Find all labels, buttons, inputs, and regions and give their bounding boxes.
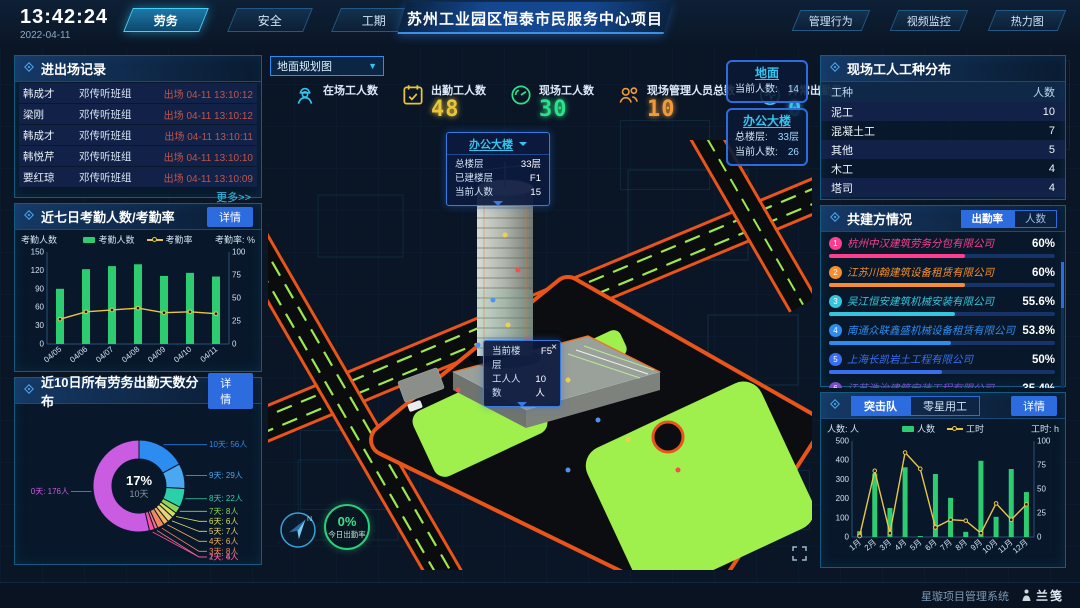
stat-item: 出勤工人数 48 — [400, 82, 486, 122]
svg-text:0天: 176人: 0天: 176人 — [31, 487, 69, 496]
compass-north-label: N — [307, 516, 312, 523]
map-layer-dropdown[interactable]: 地面规划图 ▼ — [270, 56, 384, 76]
caret-down-icon — [519, 142, 527, 150]
badge-row: 当前人数:14 — [735, 82, 799, 97]
teams-legend: 人数工时 — [885, 422, 1001, 435]
today-attendance-rate: 0% 今日出勤率 — [324, 504, 370, 550]
tooltip-row: 工人人数10人 — [492, 373, 552, 401]
svg-text:50: 50 — [1037, 485, 1046, 494]
badge-row: 当前人数:26 — [735, 145, 799, 160]
company-name: 上海长凯岩土工程有限公司 — [847, 352, 1027, 367]
stat-item: 现场工人数 30 — [508, 82, 594, 122]
teams-detail-button[interactable]: 详情 — [1011, 396, 1057, 416]
worker-name: 韩悦芹 — [23, 149, 79, 164]
trade-name: 木工 — [831, 161, 1015, 177]
svg-text:9天: 29人: 9天: 29人 — [209, 471, 243, 480]
trades-title: 现场工人工种分布 — [847, 59, 951, 78]
svg-text:6天: 6人: 6天: 6人 — [209, 517, 238, 526]
progress-fill — [829, 254, 965, 258]
company-row[interactable]: 4 南通众联鑫盛机械设备租赁有限公司 53.8% — [829, 323, 1055, 352]
floor-tooltip[interactable]: × 当前楼层F5工人人数10人 — [483, 340, 561, 407]
header-tab[interactable]: 视频监控 — [890, 10, 968, 31]
svg-text:04/10: 04/10 — [172, 344, 194, 364]
exit-event: 出场 04-11 13:10:10 — [164, 149, 253, 164]
team-name: 邓传听班组 — [79, 128, 164, 143]
diamond-icon — [23, 60, 35, 78]
company-row[interactable]: 2 江苏川翰建筑设备租赁有限公司 60% — [829, 265, 1055, 294]
entry-exit-title: 进出场记录 — [41, 59, 106, 78]
svg-text:100: 100 — [232, 248, 246, 257]
svg-text:50: 50 — [232, 294, 241, 303]
trade-count: 4 — [1015, 163, 1055, 175]
partners-list: 1 杭州中汉建筑劳务分包有限公司 60% 2 江苏川翰建筑设备租赁有限公司 60… — [821, 232, 1065, 388]
progress-fill — [829, 341, 951, 345]
teams-left-axis-label: 人数: 人 — [827, 422, 885, 435]
svg-text:10天: 56人: 10天: 56人 — [209, 440, 247, 449]
progress-track — [829, 370, 1055, 374]
compass-icon[interactable]: N — [278, 510, 318, 555]
svg-text:7天: 8人: 7天: 8人 — [209, 507, 238, 516]
svg-text:11月: 11月 — [996, 538, 1014, 555]
team-name: 邓传听班组 — [79, 86, 164, 101]
svg-text:500: 500 — [836, 437, 850, 446]
logo-figure-icon — [1021, 589, 1032, 602]
partners-title: 共建方情况 — [847, 209, 912, 228]
svg-text:04/08: 04/08 — [120, 344, 142, 364]
trade-name: 其他 — [831, 142, 1015, 158]
company-row[interactable]: 3 吴江恒安建筑机械安装有限公司 55.6% — [829, 294, 1055, 323]
exit-event: 出场 04-11 13:10:11 — [164, 128, 253, 143]
entry-exit-list: 韩成才 邓传听班组 出场 04-11 13:10:12 梁刚 邓传听班组 出场 … — [15, 83, 261, 187]
worker-name: 韩成才 — [23, 128, 79, 143]
rank-badge: 4 — [829, 324, 842, 337]
svg-text:100: 100 — [836, 513, 850, 522]
diamond-icon — [829, 397, 841, 415]
days-distribution-chart: 10天: 56人9天: 29人8天: 22人7天: 8人6天: 6人5天: 7人… — [21, 406, 255, 562]
svg-text:30: 30 — [35, 321, 44, 330]
days-distribution-header: 近10日所有劳务出勤天数分布 详情 — [15, 378, 261, 404]
exit-event: 出场 04-11 13:10:12 — [164, 86, 253, 101]
trade-name: 泥工 — [831, 104, 1015, 120]
team-name: 邓传听班组 — [79, 170, 164, 185]
table-row[interactable]: 混凝土工 7 — [821, 121, 1065, 140]
legend-item[interactable]: 考勤人数 — [83, 233, 134, 246]
badge-title[interactable]: 地面 — [735, 64, 799, 81]
attendance-title: 近七日考勤人数/考勤率 — [41, 207, 175, 226]
tooltip-row: 当前人数15 — [455, 186, 541, 200]
svg-text:04/05: 04/05 — [42, 344, 64, 364]
svg-text:7月: 7月 — [939, 538, 954, 553]
logo-text: 兰笺 — [1036, 587, 1064, 604]
footer-bar: 星璇项目管理系统 兰笺 — [0, 582, 1080, 608]
svg-text:5月: 5月 — [908, 538, 923, 553]
svg-text:3月: 3月 — [878, 538, 893, 553]
tooltip-row: 已建楼层F1 — [455, 172, 541, 186]
diamond-icon — [829, 210, 841, 228]
teams-header: 突击队零星用工 详情 — [821, 393, 1065, 419]
svg-text:8天: 22人: 8天: 22人 — [209, 494, 243, 503]
svg-text:120: 120 — [31, 266, 45, 275]
attendance-header: 近七日考勤人数/考勤率 详情 — [15, 204, 261, 230]
worker-name: 梁刚 — [23, 107, 79, 122]
rank-badge: 6 — [829, 382, 842, 388]
entry-exit-row[interactable]: 韩成才 邓传听班组 出场 04-11 13:10:11 — [19, 125, 257, 145]
rank-badge: 5 — [829, 353, 842, 366]
svg-text:25: 25 — [232, 317, 241, 326]
brand-logo: 兰笺 — [1021, 587, 1064, 604]
company-name: 江苏浩治建筑安装工程有限公司 — [847, 381, 1017, 388]
team-name: 邓传听班组 — [79, 149, 164, 164]
worker-icon — [292, 82, 318, 122]
legend-item[interactable]: 考勤率 — [147, 233, 193, 246]
entry-exit-row[interactable]: 韩悦芹 邓传听班组 出场 04-11 13:10:10 — [19, 146, 257, 166]
exit-event: 出场 04-11 13:10:09 — [164, 170, 253, 185]
attendance-left-axis-label: 考勤人数 — [21, 233, 79, 246]
svg-text:8月: 8月 — [954, 538, 969, 553]
gauge-icon — [508, 82, 534, 122]
company-value: 50% — [1032, 354, 1055, 366]
entry-exit-panel: 进出场记录 韩成才 邓传听班组 出场 04-11 13:10:12 梁刚 邓传听… — [14, 55, 262, 198]
progress-fill — [829, 283, 965, 287]
legend-item[interactable]: 人数 — [902, 422, 935, 435]
svg-text:400: 400 — [836, 456, 850, 465]
attendance-chart: 0306090120150025507510004/0504/0604/0704… — [21, 246, 255, 364]
badge-row: 总楼层:33层 — [735, 130, 799, 145]
svg-text:4天: 6人: 4天: 6人 — [209, 537, 238, 546]
table-row[interactable]: 塔司 4 — [821, 178, 1065, 197]
stat-value: 10 — [647, 98, 735, 122]
people-icon — [616, 82, 642, 122]
trade-name: 塔司 — [831, 180, 1015, 196]
svg-text:75: 75 — [232, 271, 241, 280]
company-row[interactable]: 1 杭州中汉建筑劳务分包有限公司 60% — [829, 236, 1055, 265]
building-tooltip[interactable]: 办公大楼 总楼层33层已建楼层F1当前人数15 — [446, 132, 550, 206]
svg-text:10天: 10天 — [129, 489, 148, 499]
column-header: 工种 — [831, 84, 1015, 100]
today-rate-value: 0% — [338, 515, 357, 528]
company-value: 60% — [1032, 238, 1055, 250]
partners-tab[interactable]: 出勤率 — [961, 210, 1015, 228]
badge-title[interactable]: 办公大楼 — [735, 112, 799, 129]
diamond-icon — [829, 60, 841, 78]
partners-tab[interactable]: 人数 — [1014, 210, 1057, 228]
attendance-detail-button[interactable]: 详情 — [207, 207, 253, 227]
svg-text:200: 200 — [836, 494, 850, 503]
map-region: 地面规划图 ▼ 在场工人数 出勤工人数 48 现场工人数 30 现场管理人员总数… — [268, 48, 812, 574]
stat-item: 在场工人数 — [292, 82, 378, 122]
company-value: 53.8% — [1022, 325, 1055, 337]
trade-name: 混凝土工 — [831, 123, 1015, 139]
column-header: 人数 — [1015, 84, 1055, 100]
stat-label: 现场管理人员总数 — [647, 82, 735, 98]
company-row[interactable]: 6 江苏浩治建筑安装工程有限公司 35.4% — [829, 381, 1055, 388]
days-distribution-panel: 近10日所有劳务出勤天数分布 详情 10天: 56人9天: 29人8天: 22人… — [14, 377, 262, 565]
stat-label: 现场工人数 — [539, 82, 594, 98]
trades-table: 泥工 10 混凝土工 7 其他 5 木工 4 塔司 4 — [821, 102, 1065, 197]
svg-text:04/07: 04/07 — [94, 344, 116, 364]
table-row[interactable]: 其他 5 — [821, 140, 1065, 159]
svg-text:75: 75 — [1037, 461, 1046, 470]
stat-label: 出勤工人数 — [431, 82, 486, 98]
today-rate-label: 今日出勤率 — [328, 529, 366, 540]
team-name: 邓传听班组 — [79, 107, 164, 122]
svg-text:300: 300 — [836, 475, 850, 484]
progress-track — [829, 312, 1055, 316]
progress-track — [829, 283, 1055, 287]
teams-chart: 010020030040050002550751001月2月3月4月5月6月7月… — [826, 435, 1060, 557]
header-tab[interactable]: 劳务 — [123, 8, 209, 32]
stat-item: 现场管理人员总数 10 — [616, 82, 735, 122]
stat-label: 在场工人数 — [323, 82, 378, 98]
trade-count: 10 — [1015, 106, 1055, 118]
floor-badge[interactable]: 办公大楼总楼层:33层当前人数:26 — [726, 108, 808, 166]
teams-panel: 突击队零星用工 详情 人数: 人 人数工时 工时: h 010020030040… — [820, 392, 1066, 568]
company-value: 60% — [1032, 267, 1055, 279]
company-name: 吴江恒安建筑机械安装有限公司 — [847, 294, 1017, 309]
partners-header: 共建方情况 出勤率人数 — [821, 206, 1065, 232]
entry-exit-row[interactable]: 要红琼 邓传听班组 出场 04-11 13:10:09 — [19, 167, 257, 187]
svg-text:10月: 10月 — [981, 538, 1000, 556]
progress-track — [829, 254, 1055, 258]
company-value: 35.4% — [1022, 383, 1055, 389]
company-name: 江苏川翰建筑设备租赁有限公司 — [847, 265, 1027, 280]
svg-text:1天: 6人: 1天: 6人 — [209, 553, 238, 562]
system-name: 星璇项目管理系统 — [921, 588, 1009, 604]
svg-text:0: 0 — [845, 533, 850, 542]
rank-badge: 1 — [829, 237, 842, 250]
company-name: 杭州中汉建筑劳务分包有限公司 — [847, 236, 1027, 251]
trade-count: 4 — [1015, 182, 1055, 194]
teams-tab[interactable]: 零星用工 — [910, 396, 980, 416]
entry-exit-row[interactable]: 韩成才 邓传听班组 出场 04-11 13:10:12 — [19, 83, 257, 103]
svg-text:60: 60 — [35, 303, 44, 312]
svg-text:12月: 12月 — [1011, 538, 1030, 556]
page-title: 苏州工业园区恒泰市民服务中心项目 — [402, 8, 668, 29]
fullscreen-icon[interactable] — [792, 546, 807, 566]
svg-text:25: 25 — [1037, 509, 1046, 518]
table-row[interactable]: 木工 4 — [821, 159, 1065, 178]
exit-event: 出场 04-11 13:10:12 — [164, 107, 253, 122]
calendar-check-icon — [400, 82, 426, 122]
header-tab[interactable]: 安全 — [227, 8, 313, 32]
trade-count: 7 — [1015, 125, 1055, 137]
svg-text:2月: 2月 — [863, 538, 878, 553]
stat-value: 48 — [431, 98, 486, 122]
header-bar: 13:42:24 2022-04-11 劳务安全工期 苏州工业园区恒泰市民服务中… — [0, 0, 1080, 48]
tooltip-row: 当前楼层F5 — [492, 345, 552, 373]
teams-tabs: 突击队零星用工 — [851, 396, 980, 416]
progress-track — [829, 341, 1055, 345]
attendance-legend: 考勤人数考勤率 — [79, 233, 197, 246]
teams-right-axis-label: 工时: h — [1001, 422, 1059, 435]
svg-text:1月: 1月 — [848, 538, 863, 553]
trades-table-header: 工种人数 — [821, 82, 1065, 102]
worker-name: 要红琼 — [23, 170, 79, 185]
svg-text:150: 150 — [31, 248, 45, 257]
header-tabs-right: 管理行为视频监控热力图 — [796, 10, 1062, 31]
header-tab[interactable]: 管理行为 — [792, 10, 870, 31]
svg-text:04/09: 04/09 — [146, 344, 168, 364]
company-row[interactable]: 5 上海长凯岩土工程有限公司 50% — [829, 352, 1055, 381]
chevron-down-icon: ▼ — [368, 61, 377, 71]
time-display: 13:42:24 — [20, 6, 108, 29]
svg-text:17%: 17% — [126, 473, 152, 488]
svg-text:6月: 6月 — [923, 538, 938, 553]
svg-text:0: 0 — [40, 340, 45, 349]
svg-text:4月: 4月 — [893, 538, 908, 553]
days-distribution-title: 近10日所有劳务出勤天数分布 — [41, 372, 202, 410]
clock: 13:42:24 2022-04-11 — [20, 6, 108, 41]
partners-tabs: 出勤率人数 — [961, 210, 1058, 228]
svg-text:04/06: 04/06 — [68, 344, 90, 364]
diamond-icon — [23, 382, 35, 400]
attendance-panel: 近七日考勤人数/考勤率 详情 考勤人数 考勤人数考勤率 考勤率: % 03060… — [14, 203, 262, 372]
trades-header: 现场工人工种分布 — [821, 56, 1065, 82]
rank-badge: 3 — [829, 295, 842, 308]
diamond-icon — [23, 208, 35, 226]
trades-panel: 现场工人工种分布 工种人数 泥工 10 混凝土工 7 其他 5 木工 4 塔司 … — [820, 55, 1066, 200]
close-icon[interactable]: × — [551, 342, 557, 353]
svg-text:0: 0 — [232, 340, 237, 349]
map-layer-value: 地面规划图 — [277, 58, 332, 74]
svg-text:5天: 7人: 5天: 7人 — [209, 527, 238, 536]
attendance-right-axis-label: 考勤率: % — [197, 233, 255, 246]
svg-text:0: 0 — [1037, 533, 1042, 542]
progress-fill — [829, 312, 955, 316]
table-row[interactable]: 泥工 10 — [821, 102, 1065, 121]
company-value: 55.6% — [1022, 296, 1055, 308]
stat-value: 30 — [539, 98, 594, 122]
header-tab[interactable]: 热力图 — [988, 10, 1066, 31]
floor-badge[interactable]: 地面当前人数:14 — [726, 60, 808, 103]
days-distribution-detail-button[interactable]: 详情 — [208, 373, 253, 409]
worker-name: 韩成才 — [23, 86, 79, 101]
rank-badge: 2 — [829, 266, 842, 279]
entry-exit-header: 进出场记录 — [15, 56, 261, 82]
legend-item[interactable]: 工时 — [947, 422, 984, 435]
entry-exit-row[interactable]: 梁刚 邓传听班组 出场 04-11 13:10:12 — [19, 104, 257, 124]
svg-text:100: 100 — [1037, 437, 1051, 446]
svg-text:90: 90 — [35, 284, 44, 293]
teams-tab[interactable]: 突击队 — [851, 396, 910, 416]
header-tabs-left: 劳务安全工期 — [128, 8, 412, 32]
date-display: 2022-04-11 — [20, 30, 108, 41]
partners-panel: 共建方情况 出勤率人数 1 杭州中汉建筑劳务分包有限公司 60% 2 江苏川翰建… — [820, 205, 1066, 387]
trade-count: 5 — [1015, 144, 1055, 156]
progress-fill — [829, 370, 942, 374]
pond — [653, 422, 683, 452]
company-name: 南通众联鑫盛机械设备租赁有限公司 — [847, 323, 1017, 338]
building-tooltip-title[interactable]: 办公大楼 — [469, 136, 513, 152]
tooltip-row: 总楼层33层 — [455, 158, 541, 172]
scrollbar[interactable] — [1061, 262, 1064, 388]
svg-text:04/11: 04/11 — [199, 344, 220, 364]
